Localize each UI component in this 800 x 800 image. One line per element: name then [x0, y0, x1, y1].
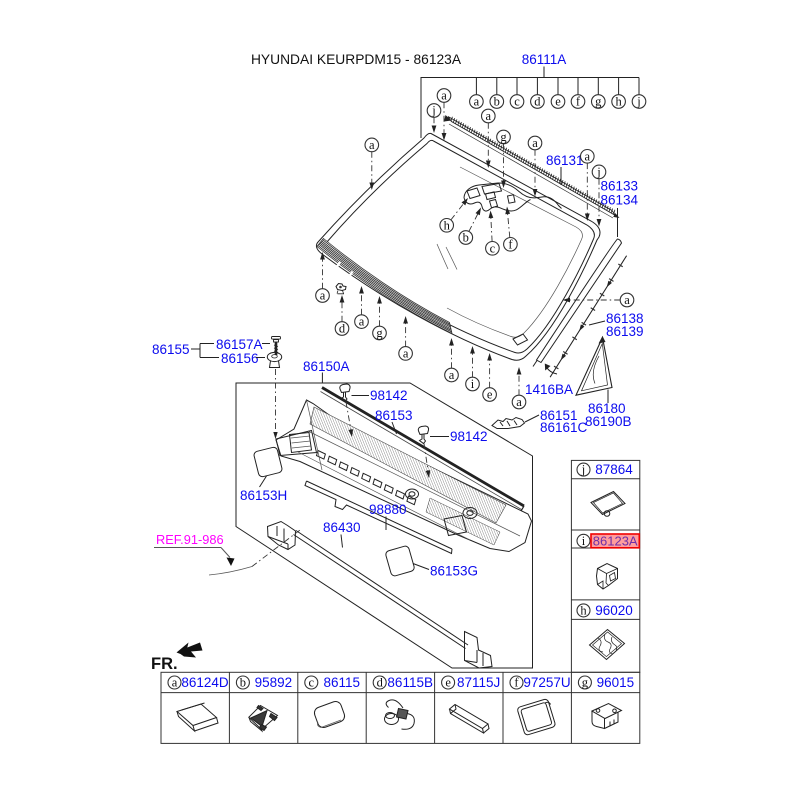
svg-text:c: c [490, 241, 496, 255]
svg-text:a: a [172, 676, 178, 690]
svg-text:g: g [595, 95, 602, 109]
svg-text:86161C: 86161C [540, 420, 588, 435]
svg-text:g: g [500, 130, 507, 144]
svg-text:86155: 86155 [152, 342, 190, 357]
svg-text:e: e [555, 95, 561, 109]
svg-text:a: a [516, 395, 522, 409]
svg-text:86133: 86133 [601, 179, 639, 194]
svg-text:h: h [580, 603, 587, 617]
svg-text:b: b [240, 676, 246, 690]
svg-text:REF.91-986: REF.91-986 [156, 532, 224, 547]
svg-text:86123A: 86123A [593, 533, 638, 548]
svg-text:86115B: 86115B [387, 675, 433, 690]
svg-text:FR.: FR. [151, 655, 178, 673]
svg-text:b: b [494, 95, 500, 109]
svg-text:86134: 86134 [601, 193, 639, 208]
svg-text:96015: 96015 [597, 675, 635, 690]
svg-text:a: a [624, 293, 630, 307]
svg-text:a: a [320, 289, 326, 303]
svg-text:86131: 86131 [546, 153, 584, 168]
svg-text:a: a [532, 136, 538, 150]
svg-text:a: a [486, 109, 492, 123]
svg-text:a: a [474, 95, 480, 109]
svg-text:d: d [534, 95, 541, 109]
svg-text:87864: 87864 [595, 462, 633, 477]
svg-text:86190B: 86190B [585, 414, 632, 429]
svg-text:HYUNDAI KEURPDM15 - 86123A: HYUNDAI KEURPDM15 - 86123A [251, 52, 462, 67]
svg-text:j: j [431, 104, 435, 118]
svg-text:i: i [471, 377, 475, 391]
svg-text:d: d [377, 676, 384, 690]
svg-text:g: g [376, 326, 383, 340]
svg-text:86430: 86430 [323, 520, 361, 535]
svg-text:86153G: 86153G [430, 564, 478, 579]
svg-text:86153H: 86153H [240, 488, 287, 503]
svg-text:96020: 96020 [595, 603, 633, 618]
svg-text:a: a [403, 346, 409, 360]
svg-text:98142: 98142 [450, 429, 488, 444]
svg-text:i: i [582, 534, 586, 548]
svg-text:h: h [444, 218, 451, 232]
svg-text:j: j [636, 95, 640, 109]
svg-text:a: a [585, 149, 591, 163]
svg-text:86111A: 86111A [522, 52, 567, 67]
svg-text:86153: 86153 [375, 408, 413, 423]
svg-text:87115J: 87115J [457, 675, 500, 690]
svg-text:j: j [596, 165, 600, 179]
svg-text:e: e [445, 676, 451, 690]
svg-text:c: c [309, 676, 315, 690]
svg-text:86150A: 86150A [303, 359, 350, 374]
svg-text:86124D: 86124D [181, 675, 229, 690]
svg-text:a: a [369, 138, 375, 152]
svg-text:86139: 86139 [606, 324, 644, 339]
svg-text:86115: 86115 [324, 675, 361, 690]
svg-text:d: d [339, 322, 346, 336]
svg-text:g: g [582, 676, 589, 690]
svg-text:c: c [514, 95, 520, 109]
svg-text:a: a [449, 368, 455, 382]
svg-text:e: e [487, 388, 493, 402]
svg-text:98880: 98880 [369, 502, 407, 517]
svg-text:95892: 95892 [255, 675, 293, 690]
svg-text:h: h [615, 95, 622, 109]
svg-text:97257U: 97257U [523, 675, 570, 690]
svg-text:a: a [359, 315, 365, 329]
svg-text:1416BA: 1416BA [525, 382, 573, 397]
svg-text:86156: 86156 [221, 351, 259, 366]
svg-text:a: a [441, 89, 447, 103]
svg-text:b: b [463, 231, 469, 245]
svg-text:98142: 98142 [370, 388, 408, 403]
svg-text:j: j [581, 463, 585, 477]
svg-text:86157A: 86157A [216, 337, 263, 352]
